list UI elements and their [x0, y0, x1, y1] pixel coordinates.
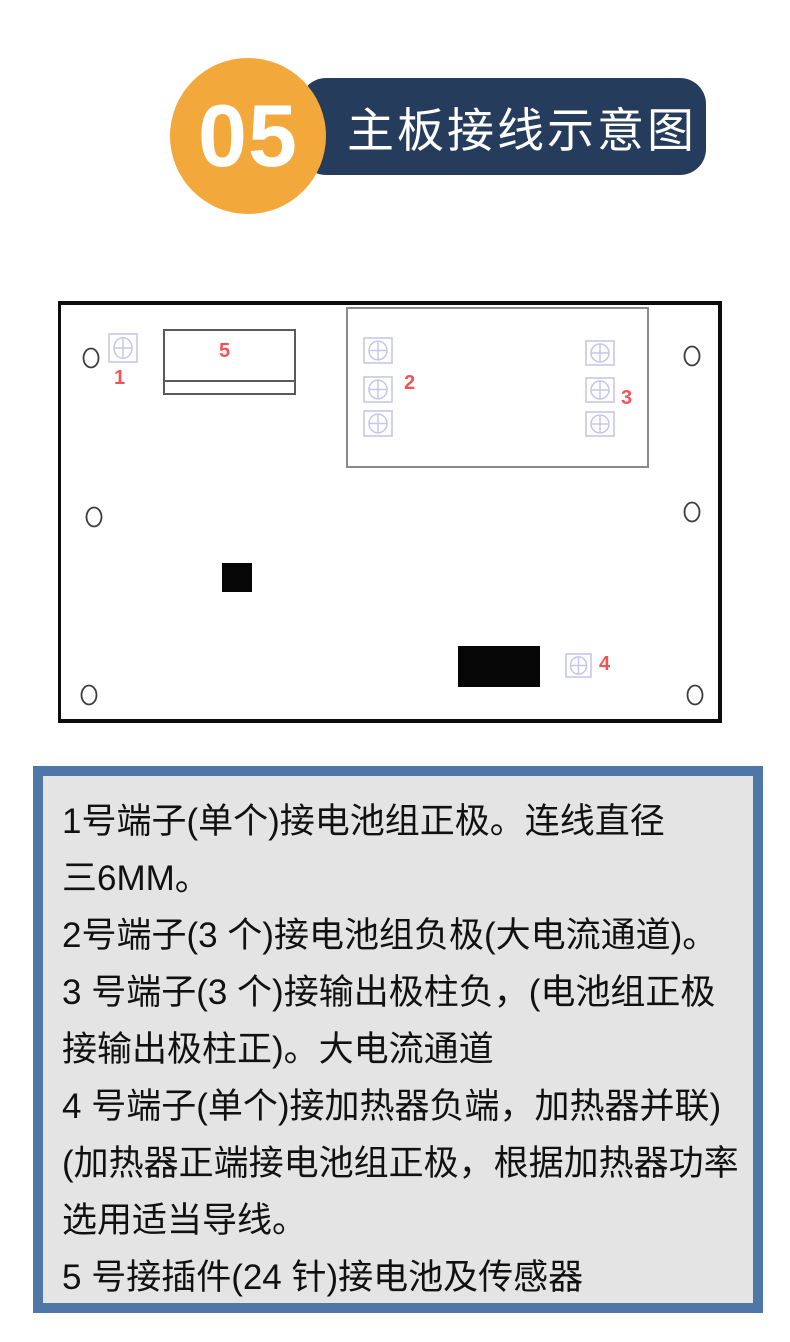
connector-divider-line: [165, 380, 294, 382]
screw-terminal-icon: [585, 340, 615, 366]
section-title-banner: 主板接线示意图: [300, 78, 706, 175]
mounting-hole-icon: [79, 683, 99, 707]
screw-terminal-icon: [108, 333, 138, 363]
terminal-number-label: 4: [599, 654, 610, 674]
note-line: 1号端子(单个)接电池组正极。连线直径: [62, 793, 739, 850]
component-block: [222, 563, 252, 592]
section-number-badge: 05: [170, 58, 326, 214]
mounting-hole-icon: [682, 500, 702, 524]
mounting-hole-icon: [84, 505, 104, 529]
screw-terminal-icon: [363, 410, 393, 437]
note-line: 3 号端子(3 个)接输出极柱负，(电池组正极: [62, 964, 739, 1021]
screw-terminal-icon: [585, 411, 615, 437]
note-line: 4 号端子(单个)接加热器负端，加热器并联): [62, 1078, 739, 1135]
screw-terminal-icon: [565, 653, 592, 678]
note-line: 选用适当导线。: [62, 1192, 739, 1249]
mounting-hole-icon: [81, 346, 101, 370]
section-title: 主板接线示意图: [309, 92, 697, 161]
note-line: 2号端子(3 个)接电池组负极(大电流通道)。: [62, 907, 739, 964]
pin-connector-block: [163, 329, 296, 395]
note-line: 接输出极柱正)。大电流通道: [62, 1021, 739, 1078]
board-diagram: 12345: [58, 301, 722, 723]
terminal-number-label: 2: [404, 373, 415, 393]
note-line: 5 号接插件(24 针)接电池及传感器: [62, 1249, 739, 1306]
mounting-hole-icon: [682, 344, 702, 368]
note-line: 三6MM。: [62, 850, 739, 907]
screw-terminal-icon: [585, 377, 615, 403]
terminal-number-label: 3: [621, 388, 632, 408]
screw-terminal-icon: [363, 376, 393, 403]
screw-terminal-icon: [363, 337, 393, 364]
terminal-number-label: 5: [219, 341, 230, 361]
mounting-hole-icon: [685, 683, 705, 707]
terminal-number-label: 1: [114, 368, 125, 388]
component-block: [458, 646, 540, 687]
notes-panel: 1号端子(单个)接电池组正极。连线直径 三6MM。 2号端子(3 个)接电池组负…: [33, 766, 763, 1313]
note-line: (加热器正端接电池组正极，根据加热器功率: [62, 1135, 739, 1192]
section-number: 05: [198, 85, 298, 187]
